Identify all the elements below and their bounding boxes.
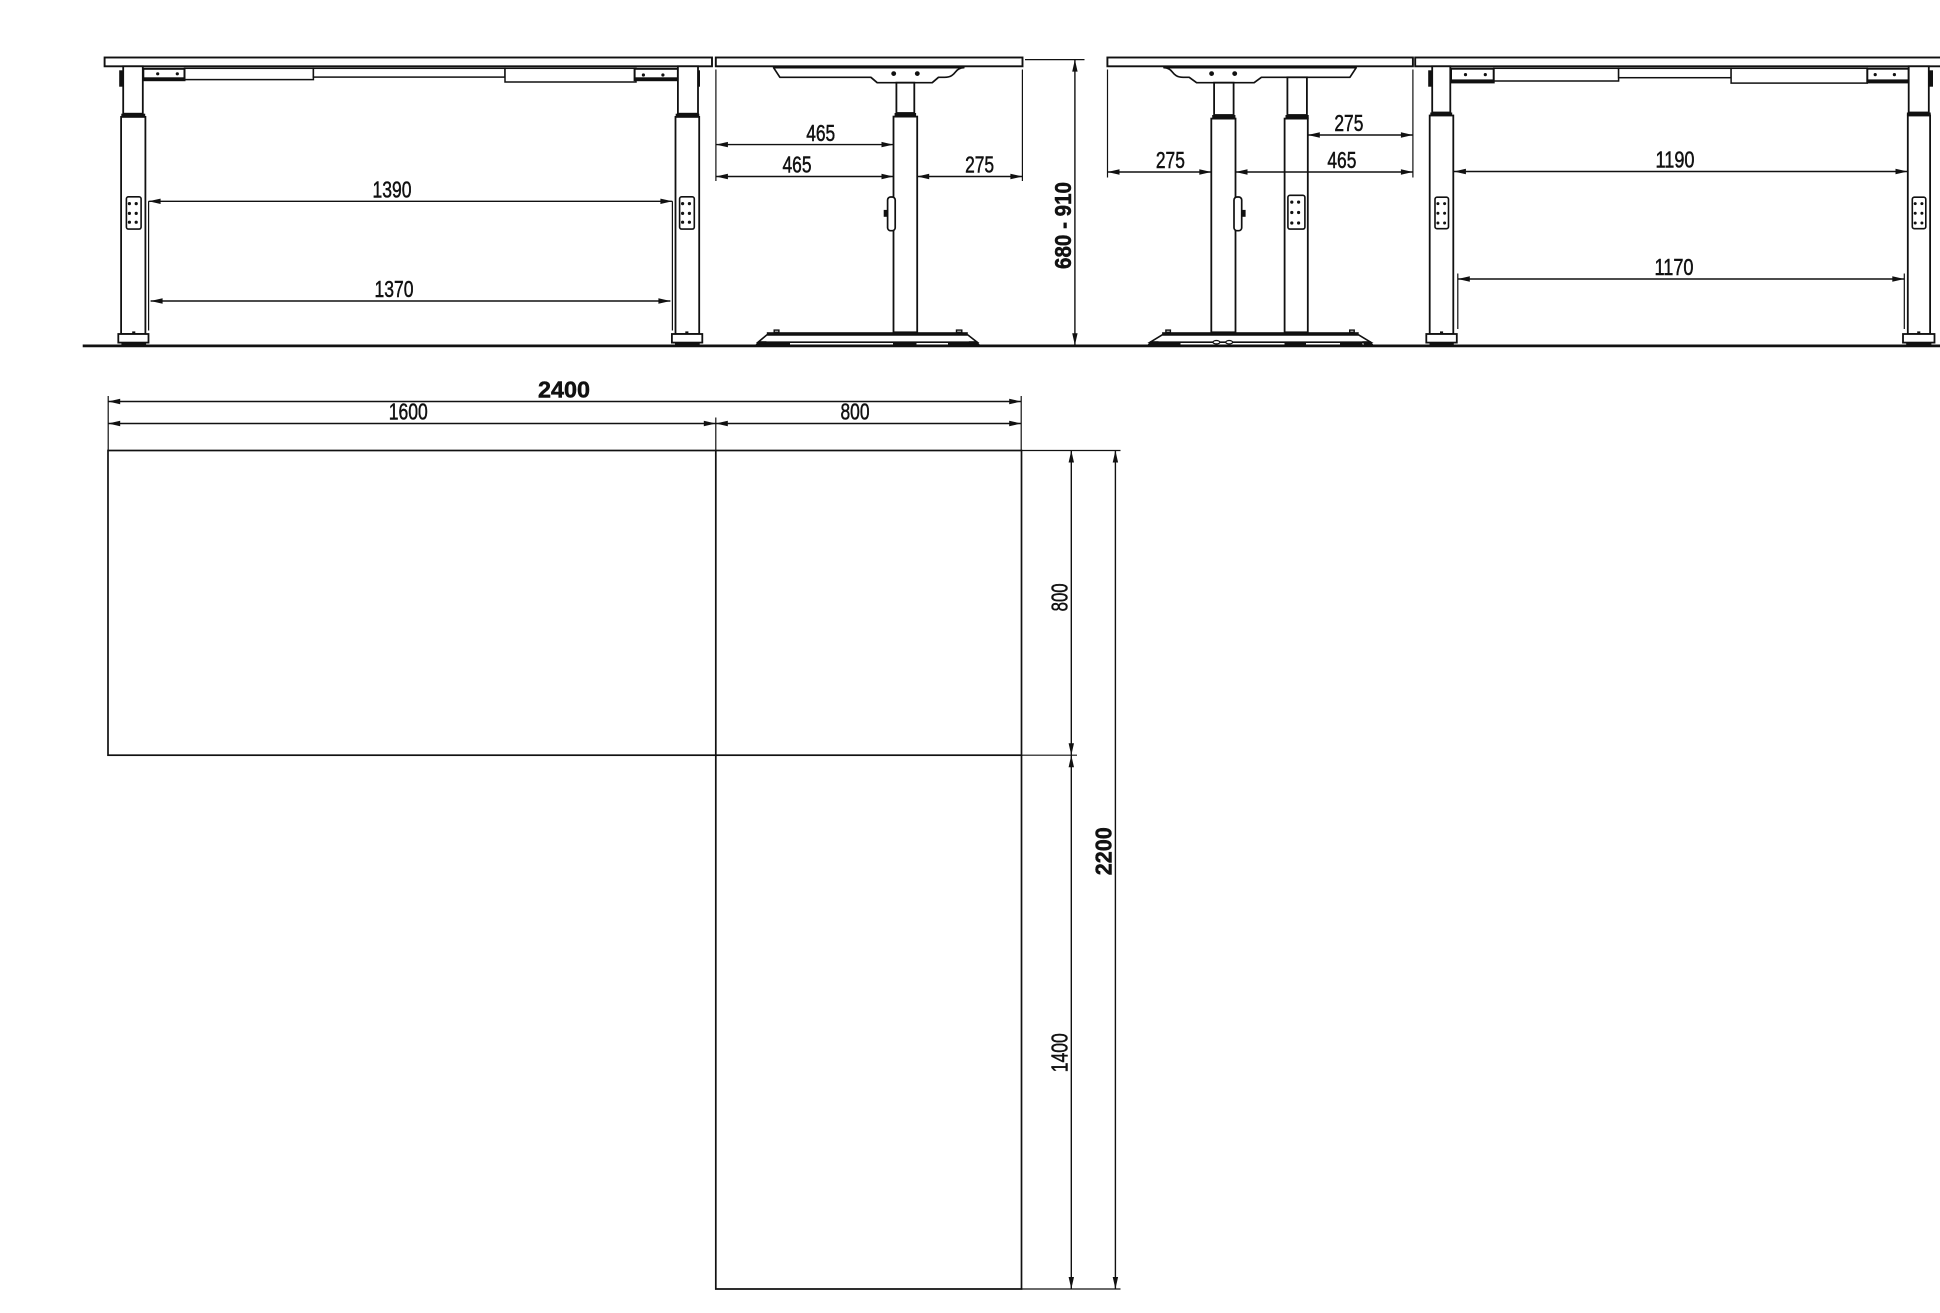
svg-text:465: 465 [783, 152, 812, 178]
svg-text:2200: 2200 [1091, 827, 1117, 875]
svg-text:1370: 1370 [375, 276, 414, 302]
svg-text:680 - 910: 680 - 910 [1050, 182, 1076, 269]
svg-text:800: 800 [1047, 583, 1073, 611]
svg-text:275: 275 [1334, 110, 1363, 136]
svg-text:800: 800 [841, 399, 870, 425]
svg-text:275: 275 [965, 152, 994, 178]
svg-text:465: 465 [806, 120, 835, 146]
svg-text:1600: 1600 [389, 399, 428, 425]
svg-text:1400: 1400 [1047, 1033, 1073, 1072]
svg-text:1390: 1390 [373, 177, 412, 203]
svg-text:275: 275 [1156, 147, 1185, 173]
svg-text:465: 465 [1327, 147, 1356, 173]
svg-text:2400: 2400 [538, 377, 590, 403]
svg-text:1190: 1190 [1656, 147, 1695, 173]
svg-text:1170: 1170 [1655, 254, 1694, 280]
